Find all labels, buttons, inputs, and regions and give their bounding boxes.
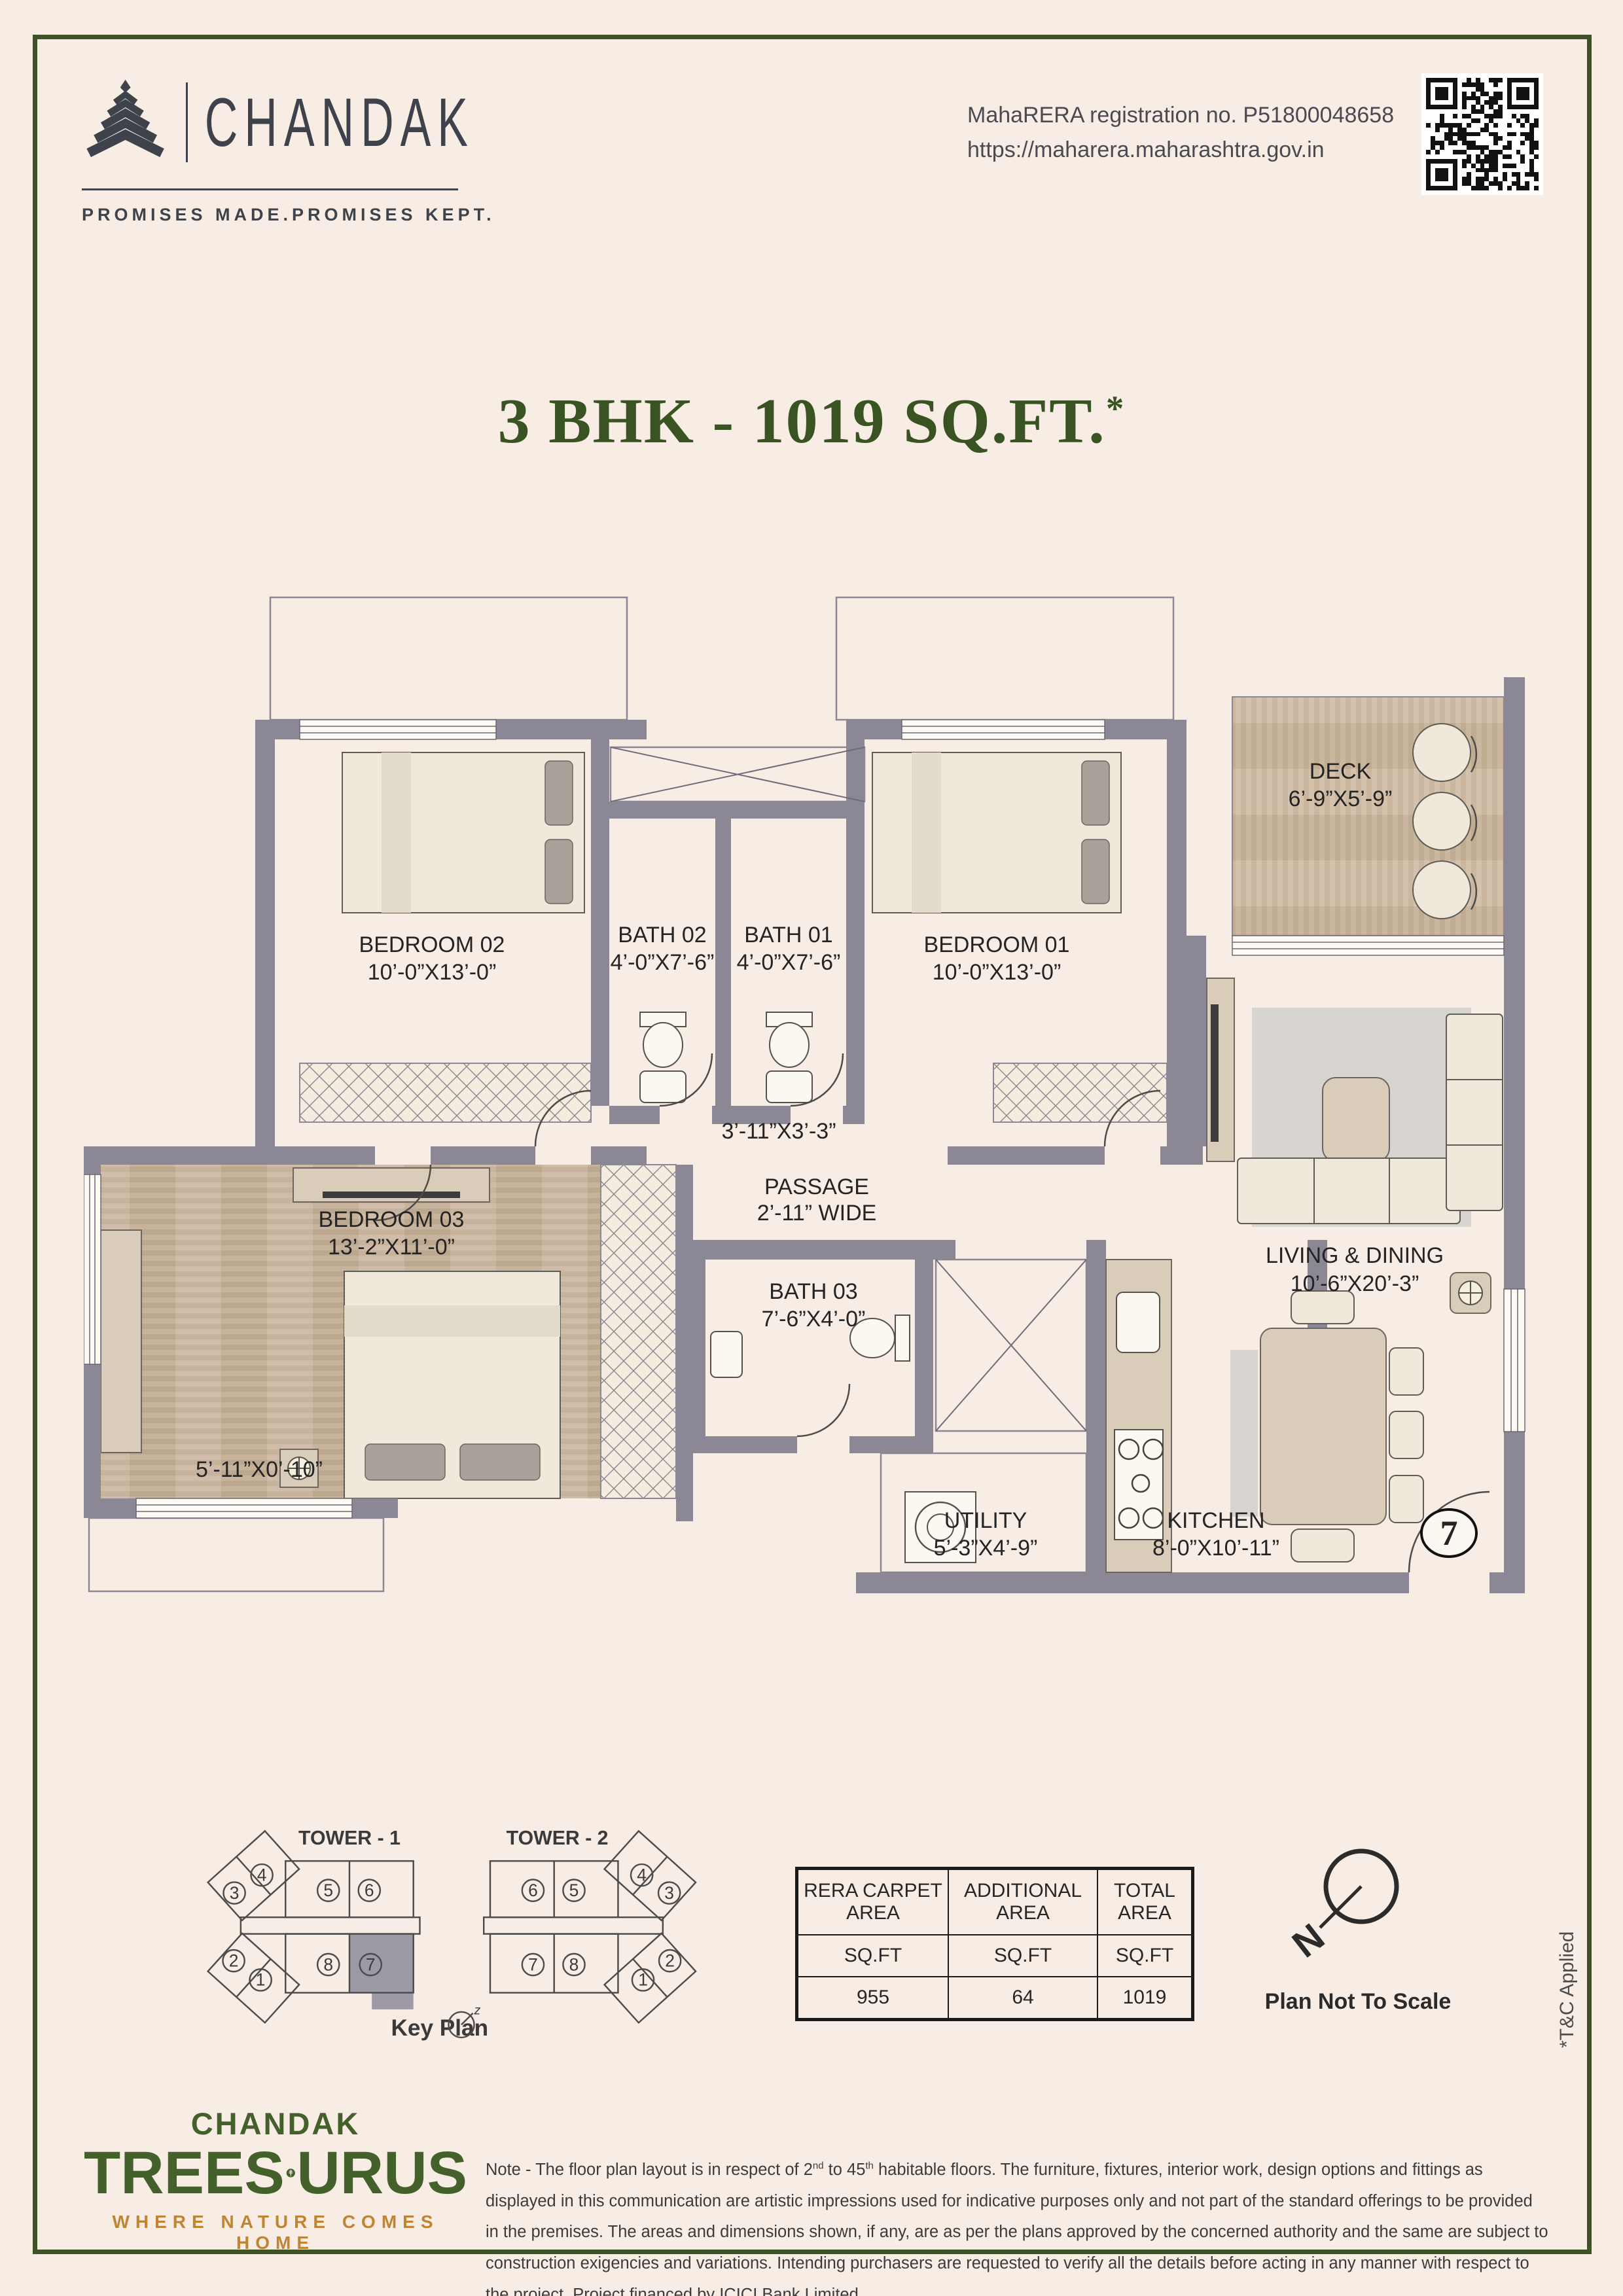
wardrobe-icon — [993, 1063, 1167, 1122]
t2-unit: 2 — [665, 1951, 675, 1970]
tv-icon — [1211, 1004, 1219, 1142]
room-dims-bedroom-02: 10’-0”X13’-0” — [368, 960, 497, 985]
rera-url: https://maharera.maharashtra.gov.in — [967, 133, 1394, 168]
room-dims-bedroom-01: 10’-0”X13’-0” — [933, 960, 1061, 985]
sink-icon — [640, 1071, 686, 1103]
room-label-deck: DECK — [1310, 759, 1372, 784]
footer-brand-subtitle: WHERE NATURE COMES HOME — [84, 2212, 467, 2253]
footer-brand-left: TREES — [84, 2142, 285, 2205]
t1-unit: 7 — [366, 1954, 376, 1974]
foyer-dims: 3’-11”X3’-3” — [721, 1119, 836, 1144]
page-title: 3 BHK - 1019 SQ.FT.* — [0, 385, 1623, 458]
room-dims-passage: 2’-11” WIDE — [757, 1201, 877, 1226]
room-label-bedroom-02: BEDROOM 02 — [359, 932, 505, 957]
area-table: RERA CARPET AREA ADDITIONAL AREA TOTAL A… — [795, 1867, 1194, 2021]
room-living-dining — [1207, 978, 1503, 1562]
deck-chair-icon — [1413, 724, 1476, 919]
unit-number: 7 — [1440, 1513, 1458, 1553]
treesourus-logo: CHANDAK TREES URUS WHERE NATURE COMES HO… — [84, 2106, 467, 2253]
t1-unit: 8 — [323, 1954, 333, 1974]
bed-icon — [344, 1271, 560, 1498]
stove-icon — [1115, 1430, 1163, 1540]
room-bath-02 — [640, 1012, 686, 1103]
logo-divider — [186, 82, 188, 162]
svg-text:z: z — [474, 2004, 481, 2018]
area-table-unit: SQ.FT — [1097, 1935, 1193, 1977]
room-kitchen — [1106, 1260, 1171, 1572]
unit-number-badge: 7 — [1421, 1510, 1476, 1557]
rera-registration: MahaRERA registration no. P51800048658 h… — [967, 98, 1394, 167]
room-dims-utility: 5’-3”X4’-9” — [934, 1536, 1038, 1561]
t2-unit: 1 — [638, 1970, 648, 1990]
room-deck — [1232, 697, 1504, 936]
brand-name: CHANDAK — [205, 83, 474, 162]
room-label-kitchen: KITCHEN — [1167, 1508, 1264, 1533]
t2-unit: 6 — [528, 1881, 538, 1900]
room-label-bath-02: BATH 02 — [618, 923, 706, 947]
t2-unit: 8 — [569, 1954, 579, 1974]
room-dims-bedroom-03: 13’-2”X11’-0” — [328, 1235, 455, 1260]
sink-icon — [766, 1071, 812, 1103]
area-table-header: TOTAL AREA — [1097, 1869, 1193, 1935]
room-label-bedroom-01: BEDROOM 01 — [924, 932, 1070, 957]
room-dims-bath-03: 7’-6”X4’-0” — [762, 1307, 866, 1332]
t2-unit: 5 — [569, 1881, 579, 1900]
t2-unit: 4 — [637, 1865, 647, 1884]
total-area-value: 1019 — [1097, 1977, 1193, 2020]
room-label-living: LIVING & DINING — [1266, 1243, 1444, 1268]
t1-unit: 2 — [229, 1951, 239, 1970]
sink-icon — [711, 1332, 742, 1377]
room-dims-bath-02: 4’-0”X7’-6” — [611, 950, 715, 975]
qr-code — [1421, 73, 1543, 195]
rera-carpet-area-value: 955 — [797, 1977, 949, 2020]
tree-icon — [286, 2146, 296, 2200]
title-asterisk: * — [1106, 388, 1126, 428]
room-label-passage: PASSAGE — [764, 1174, 869, 1199]
coffee-table-icon — [1323, 1078, 1389, 1161]
room-dims-living: 10’-6”X20’-3” — [1291, 1271, 1419, 1296]
area-table-header: ADDITIONAL AREA — [948, 1869, 1097, 1935]
area-table-header: RERA CARPET AREA — [797, 1869, 949, 1935]
brochure-page: CHANDAK PROMISES MADE.PROMISES KEPT. Mah… — [0, 0, 1623, 2296]
tower2-outline — [484, 1831, 696, 2022]
tower2-units: 6 5 4 3 7 8 1 2 — [522, 1864, 681, 1991]
bed-icon — [342, 752, 584, 913]
ledge-dims: 5’-11”X0’-10” — [196, 1457, 323, 1482]
room-bath-01 — [766, 1012, 812, 1103]
wardrobe-icon — [300, 1063, 591, 1122]
area-table-unit: SQ.FT — [948, 1935, 1097, 1977]
room-dims-bath-01: 4’-0”X7’-6” — [737, 950, 841, 975]
footer-brand-right: URUS — [296, 2142, 467, 2205]
chandak-pyramid-icon — [82, 73, 169, 171]
t1-unit: 5 — [323, 1881, 333, 1900]
t1-unit: 3 — [230, 1883, 240, 1903]
room-label-utility: UTILITY — [944, 1508, 1027, 1533]
disclaimer-note: Note - The floor plan layout is in respe… — [486, 2155, 1549, 2296]
brand-tagline: PROMISES MADE.PROMISES KEPT. — [82, 205, 474, 225]
chandak-logo: CHANDAK PROMISES MADE.PROMISES KEPT. — [82, 73, 474, 225]
additional-area-value: 64 — [948, 1977, 1097, 2020]
room-dims-deck: 6’-9”X5’-9” — [1289, 786, 1393, 811]
t2-unit: 3 — [664, 1883, 674, 1903]
t1-unit: 1 — [256, 1970, 266, 1990]
room-label-bath-03: BATH 03 — [769, 1279, 857, 1304]
room-label-bath-01: BATH 01 — [744, 923, 832, 947]
fan-icon — [1450, 1273, 1491, 1313]
scale-note: Plan Not To Scale — [1247, 1989, 1469, 2015]
t2-unit: 7 — [528, 1954, 538, 1974]
key-plan: TOWER - 1 TOWER - 2 3 4 5 6 8 7 — [180, 1820, 743, 2053]
area-table-unit: SQ.FT — [797, 1935, 949, 1977]
north-compass-icon: N — [1286, 1835, 1430, 1986]
bed-icon — [872, 752, 1121, 913]
dresser-icon — [101, 1230, 141, 1453]
toilet-icon — [766, 1012, 812, 1067]
floor-plan: 7 BEDROOM 02 10’-0”X13’-0” BATH 02 4’-0”… — [84, 586, 1537, 1616]
t1-unit: 4 — [257, 1865, 267, 1884]
t1-unit: 6 — [365, 1881, 374, 1900]
room-label-bedroom-03: BEDROOM 03 — [319, 1207, 465, 1232]
kitchen-sink-icon — [1116, 1292, 1160, 1352]
tc-note: *T&C Applied — [1556, 1878, 1578, 2048]
tower1-label: TOWER - 1 — [298, 1828, 401, 1849]
wardrobe-icon — [601, 1165, 676, 1498]
tower2-label: TOWER - 2 — [507, 1828, 609, 1849]
room-dims-kitchen: 8’-0”X10’-11” — [1152, 1536, 1279, 1561]
toilet-icon — [640, 1012, 686, 1067]
rera-number: MahaRERA registration no. P51800048658 — [967, 98, 1394, 133]
footer-brand-top: CHANDAK — [84, 2106, 467, 2142]
logo-rule — [82, 188, 458, 190]
tower1-outline — [208, 1831, 420, 2022]
